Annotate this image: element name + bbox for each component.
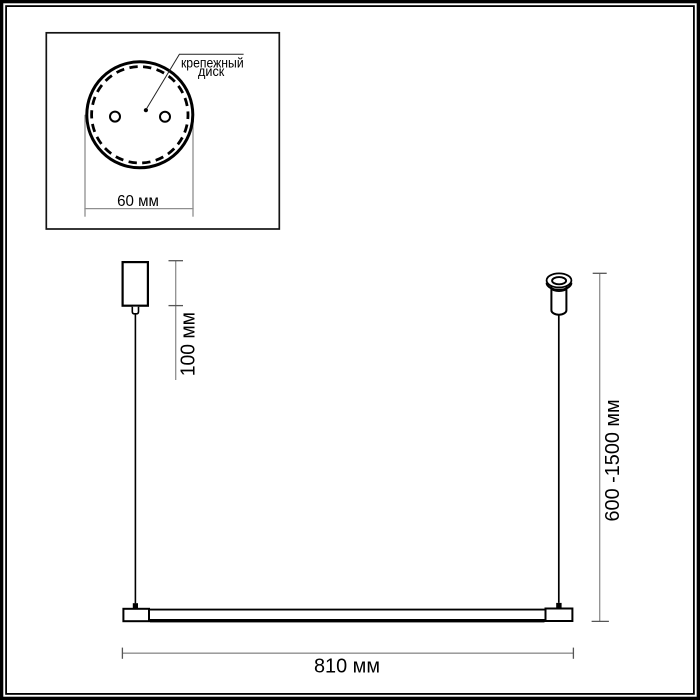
- svg-text:100 мм: 100 мм: [177, 312, 199, 376]
- svg-text:диск: диск: [198, 63, 225, 79]
- svg-text:60 мм: 60 мм: [117, 193, 159, 210]
- svg-text:600 -1500 мм: 600 -1500 мм: [602, 399, 624, 521]
- svg-text:810 мм: 810 мм: [314, 656, 380, 678]
